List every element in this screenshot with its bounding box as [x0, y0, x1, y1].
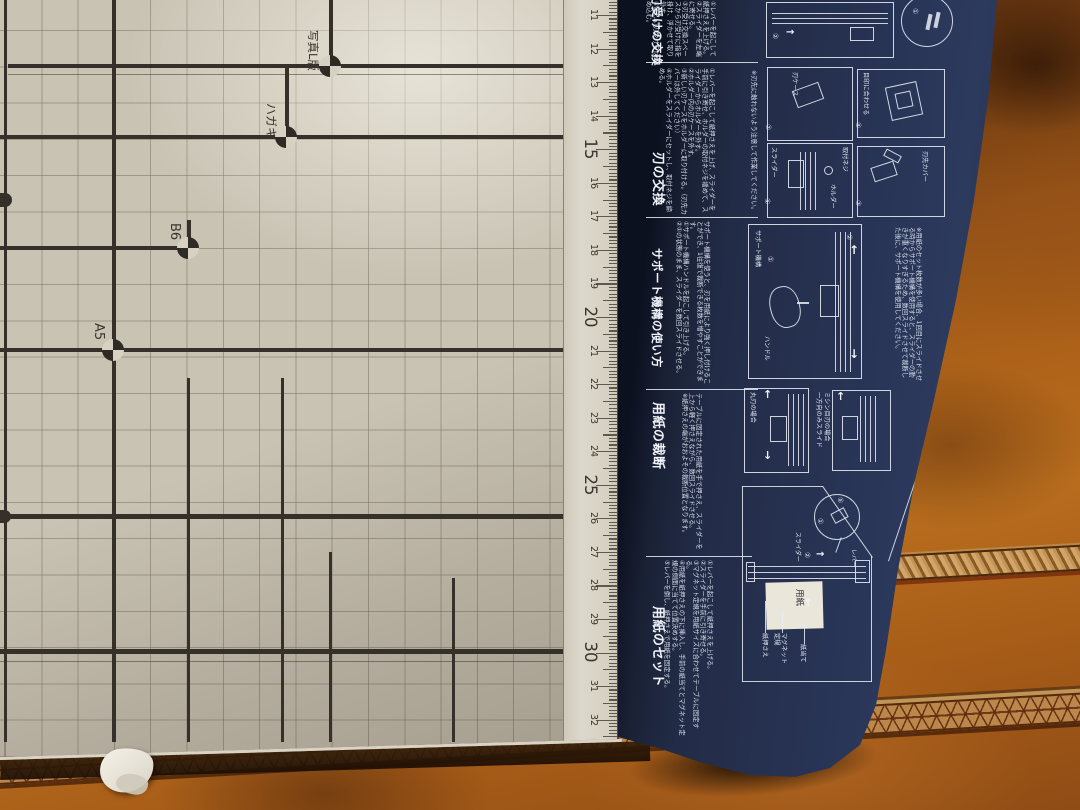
label-screw: 取付ネジ: [841, 147, 848, 172]
step-digit: ①: [910, 8, 918, 14]
label-paper-guide: 紙当て: [799, 644, 806, 663]
diagram-rail: [798, 394, 799, 466]
arrow-up-icon: ↑: [803, 597, 813, 609]
section-rule: [646, 556, 752, 557]
diagram-rail: [803, 394, 804, 466]
label-lever: レバー: [849, 549, 856, 567]
guide-line: [112, 0, 116, 742]
diagram-rail: [865, 396, 866, 462]
step-digit: ②: [763, 124, 771, 130]
label-slider: スライダー: [793, 532, 800, 562]
label-magnet-rule: マグネット定規: [773, 633, 786, 669]
step-digit: ①: [762, 198, 770, 204]
diagram-rail: [805, 152, 806, 210]
diagram-part: [797, 302, 809, 304]
step-digit: ⑤: [835, 497, 843, 503]
registration-mark: [177, 237, 199, 259]
diagram-slider: [770, 416, 787, 442]
diagram-rail: [772, 18, 888, 19]
diagram-box: [767, 67, 853, 141]
diagram-rail: [810, 152, 811, 210]
label-holder: ホルダー: [829, 184, 836, 209]
section-rule: [646, 389, 758, 390]
step-digit: ②: [770, 33, 778, 39]
guide-line: [0, 348, 578, 352]
step-digit: ③: [769, 610, 777, 616]
diagram-box: [742, 486, 743, 682]
section-rule: [646, 217, 758, 218]
section-body: ①レバーを起こして紙押さえを上げる。 ②スライダーを左端に寄せる。 ③刃受け交換…: [645, 1, 716, 61]
label-paper: 用紙: [793, 589, 803, 606]
label-perf-blade: ミシン目刃の場合: [823, 392, 830, 442]
diagram-rail: [860, 396, 861, 462]
leader-line: [782, 612, 783, 633]
label-round-blade: 丸刃の場合: [749, 392, 756, 423]
guide-line: [281, 378, 284, 742]
guide-line: [452, 578, 455, 742]
leader-line: [804, 624, 805, 644]
wood-rope-inlay: [878, 541, 1080, 582]
guide-line: [0, 514, 578, 519]
arrow-right-icon: →: [786, 28, 794, 38]
section-body: テーブルに固定された用紙を手で押さえ、スライダーを上から軽く押さえながら、数回ス…: [681, 393, 702, 551]
cutting-board: 写真L版 ハガキ B6 A5 1112131415161718192021222…: [0, 0, 618, 760]
leader-line: [765, 601, 766, 633]
step-digit: ③: [853, 200, 861, 206]
label-one-way: 一方向のみスライド: [815, 392, 822, 448]
diagram-slider: [855, 560, 870, 583]
guide-line: [0, 649, 578, 654]
size-label-b6: B6: [168, 223, 181, 240]
photo-rotary-trimmer: 写真L版 ハガキ B6 A5 1112131415161718192021222…: [0, 0, 1080, 810]
ruler: 1112131415161718192021222324252627282930…: [563, 0, 619, 746]
step-digit: ④: [853, 122, 861, 128]
section-body: ①レバーを起こして紙押さえを上げ、スライダーを手前に引き寄せ、ホルダーの取付ネジ…: [658, 68, 715, 215]
diagram-rail: [815, 152, 816, 210]
label-paper-press: 紙押さえ: [761, 633, 768, 658]
label-blade-case: 刃ケース: [791, 72, 798, 96]
registration-mark: [319, 55, 341, 77]
step-digit: ①: [765, 256, 773, 262]
diagram-rail: [870, 396, 871, 462]
size-label-photo-l: 写真L版: [307, 30, 319, 71]
diagram-rail: [788, 394, 789, 466]
label-support: サポート機構: [754, 230, 761, 267]
size-label-a5: A5: [92, 323, 105, 340]
label-blade-cover: 刃先カバー: [921, 151, 928, 182]
arrow-up-icon: ↑: [763, 389, 772, 400]
label-slider: スライダー: [770, 147, 777, 178]
diagram-rail: [748, 572, 866, 573]
diagram-rail: [840, 232, 841, 372]
arrow-down-icon: ↓: [763, 450, 772, 461]
diagram-part: [895, 91, 914, 110]
step-digit: ①: [815, 518, 823, 524]
section-note: ※刃先に触れないよう注意して作業してください。: [750, 70, 757, 215]
diagram-rail: [772, 23, 888, 24]
section-title-support: サポート機構の使い方: [650, 248, 663, 368]
size-label-hagaki: ハガキ: [265, 103, 277, 139]
section-note: ※用紙のセット枚数が多い場合、1回目にスライドさせる時からサポート機構を使用する…: [894, 227, 922, 383]
diagram-rail: [772, 13, 888, 14]
arrow-right-icon: →: [816, 550, 824, 560]
diagram-rail: [748, 578, 866, 579]
guide-line: [8, 64, 578, 68]
section-body: サポート機構を使うと、刃を用紙により強く押し付けることができ、1往復で裁断できる…: [675, 221, 710, 386]
guide-line: [187, 378, 190, 742]
diagram-slider: [820, 285, 839, 317]
step-digit: ②: [802, 552, 810, 558]
diagram-box: [742, 681, 872, 682]
guide-line: [4, 0, 7, 742]
diagram-slider: [842, 416, 858, 440]
section-title-cutting: 用紙の裁断: [649, 402, 664, 470]
diagram-part: [746, 562, 755, 582]
diagram-rail: [845, 232, 846, 372]
step-digit: ②: [844, 234, 852, 240]
guide-line: [8, 74, 576, 75]
guide-line: [329, 552, 332, 742]
diagram-part: [850, 27, 874, 41]
label-align-mark: 目印に合わせる: [862, 72, 869, 115]
arrow-up-icon: ↑: [849, 244, 859, 256]
label-handle: ハンドル: [763, 336, 770, 361]
arrow-down-icon: ↓: [849, 348, 859, 360]
diagram-box: [871, 556, 872, 682]
arrow-up-icon: ↑: [836, 391, 845, 402]
diagram-rail: [875, 396, 876, 462]
diagram-slider: [788, 160, 804, 188]
guide-line: [0, 661, 578, 662]
diagram-box: [742, 486, 823, 487]
section-body: ①レバーを起こして紙押さえを上げる。 ②スライダーを手前に引き寄せる。 ③マグネ…: [663, 560, 713, 740]
diagram-screw: [824, 166, 833, 175]
diagram-rail: [793, 394, 794, 466]
section-title-paper-set: 用紙のセット: [649, 606, 664, 687]
registration-mark: [102, 339, 124, 361]
registration-mark: [275, 126, 297, 148]
guide-line: [0, 246, 192, 250]
